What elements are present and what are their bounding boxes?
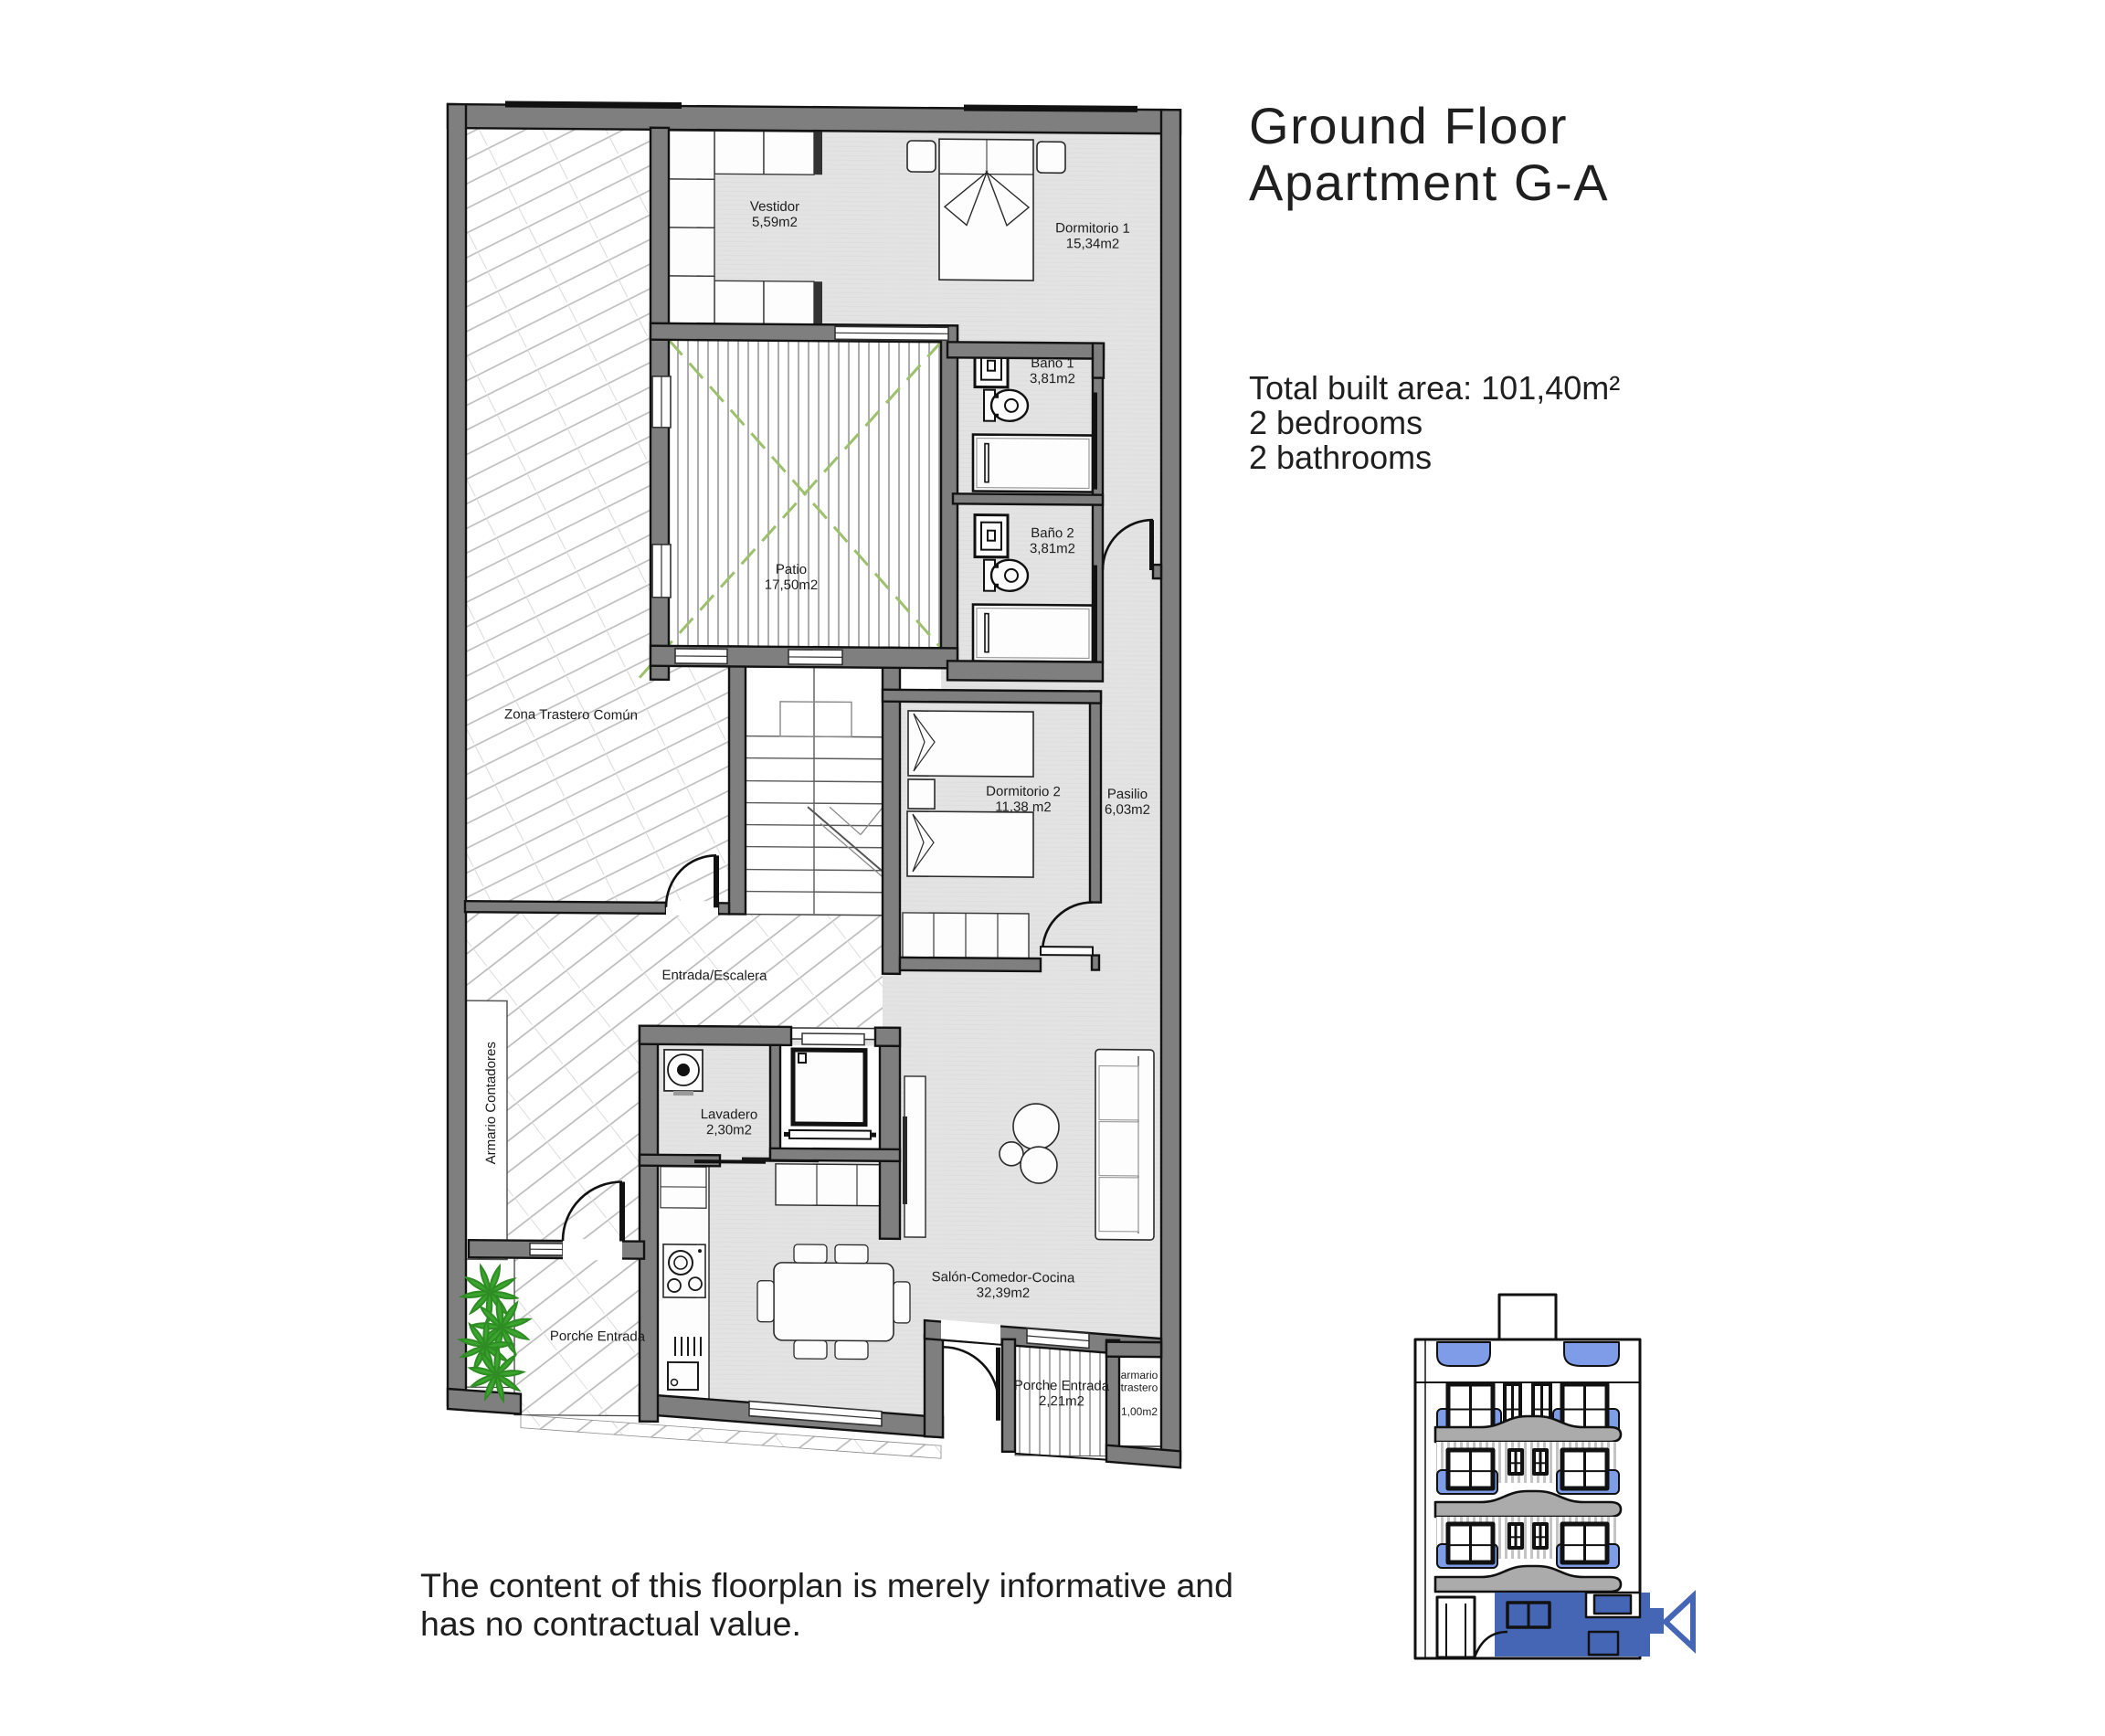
svg-text:Entrada/Escalera: Entrada/Escalera bbox=[661, 968, 767, 984]
svg-text:Total built area: 101,40m²2 be: Total built area: 101,40m²2 bedrooms2 ba… bbox=[1249, 369, 1620, 476]
svg-text:Vestidor5,59m2: Vestidor5,59m2 bbox=[750, 199, 799, 230]
svg-text:armariotrastero: armariotrastero bbox=[1121, 1369, 1158, 1394]
svg-text:Ground FloorApartment G-A: Ground FloorApartment G-A bbox=[1249, 97, 1609, 211]
svg-text:1,00m2: 1,00m2 bbox=[1121, 1405, 1158, 1418]
svg-text:Lavadero2,30m2: Lavadero2,30m2 bbox=[701, 1106, 758, 1138]
svg-text:Zona Trastero Común: Zona Trastero Común bbox=[504, 706, 638, 723]
svg-text:Porche Entrada: Porche Entrada bbox=[550, 1328, 646, 1345]
svg-text:Pasilio6,03m2: Pasilio6,03m2 bbox=[1105, 787, 1150, 818]
svg-text:The content of this floorplan: The content of this floorplan is merely … bbox=[420, 1566, 1233, 1643]
svg-text:Dormitorio 115,34m2: Dormitorio 115,34m2 bbox=[1055, 220, 1130, 252]
svg-text:Baño 13,81m2: Baño 13,81m2 bbox=[1030, 355, 1075, 386]
svg-text:Dormitorio 211,38 m2: Dormitorio 211,38 m2 bbox=[986, 784, 1061, 816]
svg-text:Armario Contadores: Armario Contadores bbox=[483, 1042, 499, 1164]
svg-text:Baño 23,81m2: Baño 23,81m2 bbox=[1030, 525, 1075, 556]
